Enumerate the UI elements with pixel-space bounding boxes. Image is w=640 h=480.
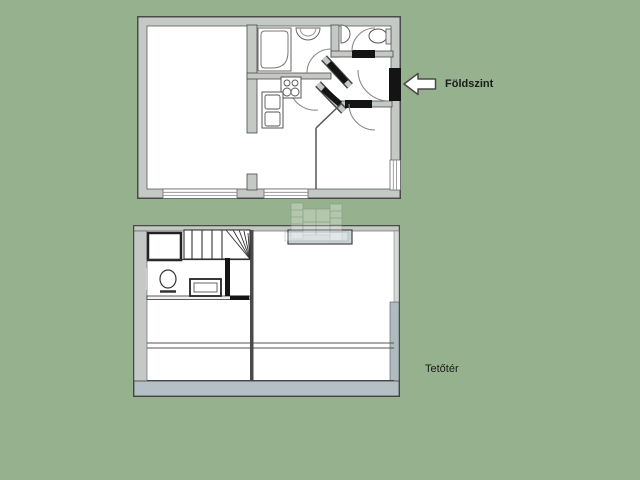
floor-plan-sheet: Földszint Tetőtér — [0, 0, 640, 480]
attic-top-band — [134, 226, 399, 231]
window-kitchen — [264, 189, 308, 199]
entrance-door — [389, 68, 401, 101]
attic-right-band-upper — [394, 231, 399, 308]
attic-sink-basin — [194, 283, 217, 292]
attic-left-wall-window — [145, 268, 148, 290]
toilet-tank — [386, 29, 391, 44]
attic-landing-door-opening — [225, 258, 230, 296]
left-arrow-icon — [403, 72, 437, 96]
attic-toilet-icon — [160, 270, 176, 288]
shower-icon — [148, 233, 181, 260]
sink-bowl-lower — [265, 112, 280, 126]
ground-floor-plan — [137, 16, 401, 199]
ground-floor-label: Földszint — [445, 78, 493, 90]
bathtub-icon — [261, 31, 288, 68]
window-living-room — [163, 189, 237, 199]
sink-bowl-upper — [265, 95, 280, 109]
attic-left-band — [134, 231, 147, 381]
watermark-logo — [283, 201, 351, 243]
attic-eaves-band — [134, 381, 399, 396]
wc-door-opening — [352, 50, 375, 58]
attic-room-door-opening — [230, 296, 249, 301]
window-bedroom — [390, 160, 401, 190]
attic-floor-plan — [133, 225, 400, 397]
attic-right-band-lower — [390, 302, 399, 381]
attic-label: Tetőtér — [425, 363, 459, 375]
toilet-icon — [369, 29, 387, 43]
staircase — [184, 230, 250, 259]
wall-living-divider-lower — [247, 174, 257, 190]
